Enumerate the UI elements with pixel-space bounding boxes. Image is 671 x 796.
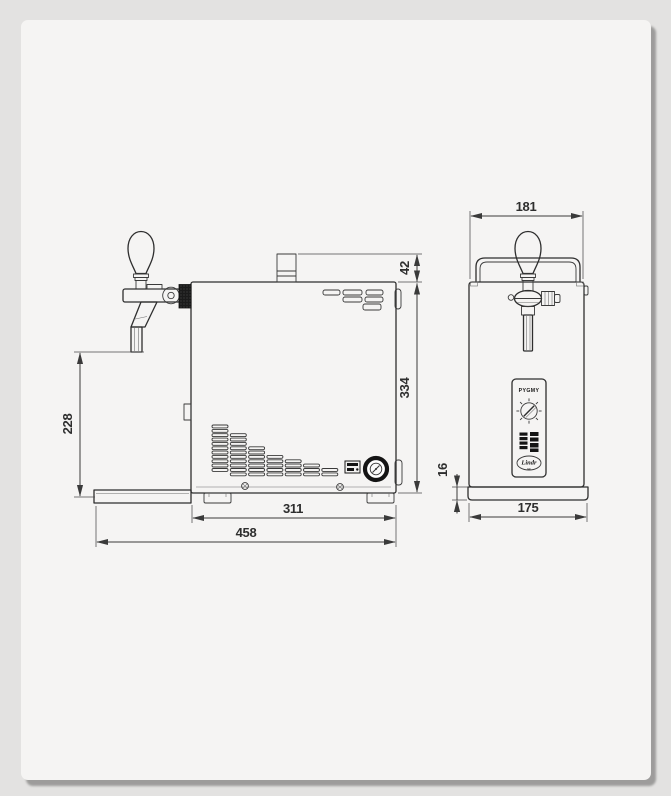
compensator-knob <box>542 292 555 306</box>
brand-logo: Lindr cz <box>517 456 541 470</box>
carrying-handle <box>476 258 580 282</box>
base-plate-front <box>468 487 588 500</box>
tap-handle <box>128 232 154 274</box>
top-fitting <box>277 254 296 282</box>
dim-body-depth: 311 <box>193 501 395 518</box>
dim-label-458: 458 <box>236 525 257 540</box>
dim-overall-width: 181 <box>471 199 582 216</box>
dim-label-228: 228 <box>60 414 75 435</box>
side-view <box>94 232 402 504</box>
dim-base-width: 175 <box>470 500 586 517</box>
top-labels <box>323 290 383 310</box>
dim-overall-depth: 458 <box>97 525 395 542</box>
cabinet-side <box>191 282 396 493</box>
tap-assembly-side <box>123 232 191 353</box>
pressure-gauge <box>365 458 387 480</box>
knurled-collar <box>179 285 191 309</box>
foot-right <box>367 493 394 503</box>
thermostat-knob <box>516 398 541 423</box>
brand-logo-sub: cz <box>527 466 531 470</box>
page-background: PYGMY <box>0 0 671 796</box>
tap-body <box>123 289 180 302</box>
tap-assembly-front <box>508 232 560 352</box>
base-plate-side <box>94 490 191 503</box>
dim-label-42: 42 <box>397 261 412 275</box>
dim-fitting-height: 42 <box>397 255 417 282</box>
tap-handle-front <box>515 232 541 274</box>
screw-left <box>242 483 249 490</box>
panel-model-label: PYGMY <box>519 388 540 394</box>
spout-tube-front <box>524 315 533 351</box>
technical-drawing: PYGMY <box>0 0 671 796</box>
spout-elbow <box>131 302 157 327</box>
dim-body-height: 334 <box>397 284 417 493</box>
dim-label-16: 16 <box>435 463 450 477</box>
dim-label-311: 311 <box>283 501 303 516</box>
front-view: PYGMY <box>468 232 588 501</box>
dim-base-height: 16 <box>435 463 457 513</box>
rating-plate <box>345 461 360 473</box>
spout-tube <box>131 327 142 352</box>
vent-slots <box>212 425 338 476</box>
dim-label-334: 334 <box>397 377 412 399</box>
panel-micro-label <box>520 432 539 452</box>
dimensions: 42 334 228 311 458 <box>60 199 587 547</box>
dim-spout-height: 228 <box>60 353 80 496</box>
wall-clip <box>184 404 191 420</box>
dim-label-175: 175 <box>518 500 539 515</box>
dim-label-181: 181 <box>516 199 537 214</box>
foot-left <box>204 493 231 503</box>
control-panel: PYGMY <box>512 379 546 477</box>
